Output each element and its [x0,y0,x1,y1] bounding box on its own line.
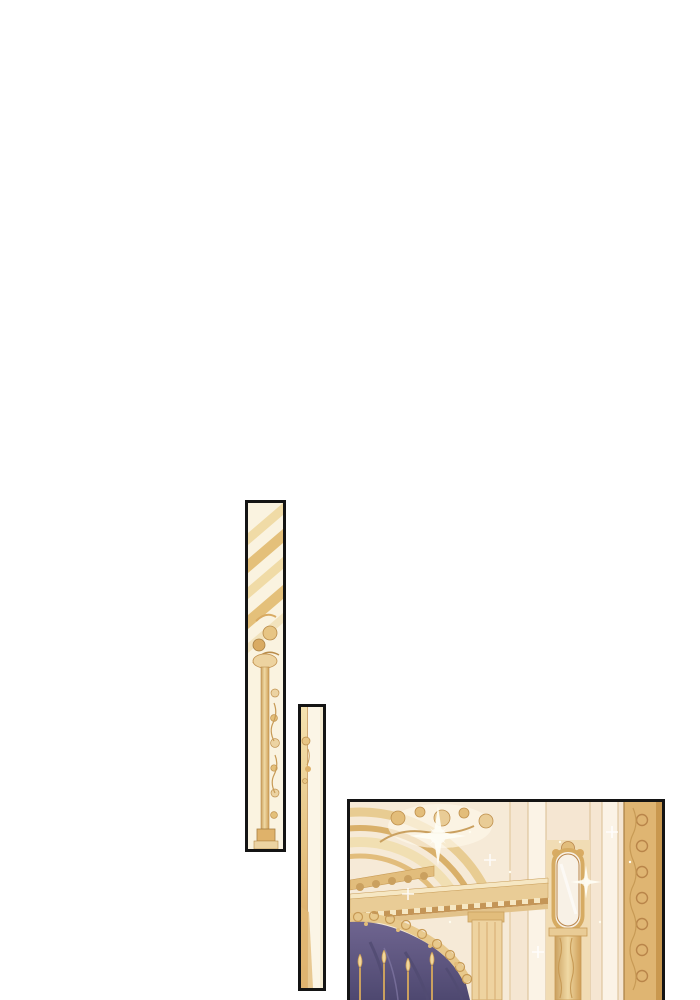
panel-1-art [248,503,283,849]
filigree-column [624,802,662,1000]
panel-2-art [301,707,323,988]
comic-panel-palace-hall [347,799,665,1000]
panel-3-art [350,802,662,1000]
fluted-column [468,912,504,1000]
comic-panel-tall [245,500,286,852]
comic-page [0,0,700,1000]
mirrored-pilaster [546,840,590,1000]
wall-shade [320,707,323,988]
comic-panel-sliver [298,704,326,991]
